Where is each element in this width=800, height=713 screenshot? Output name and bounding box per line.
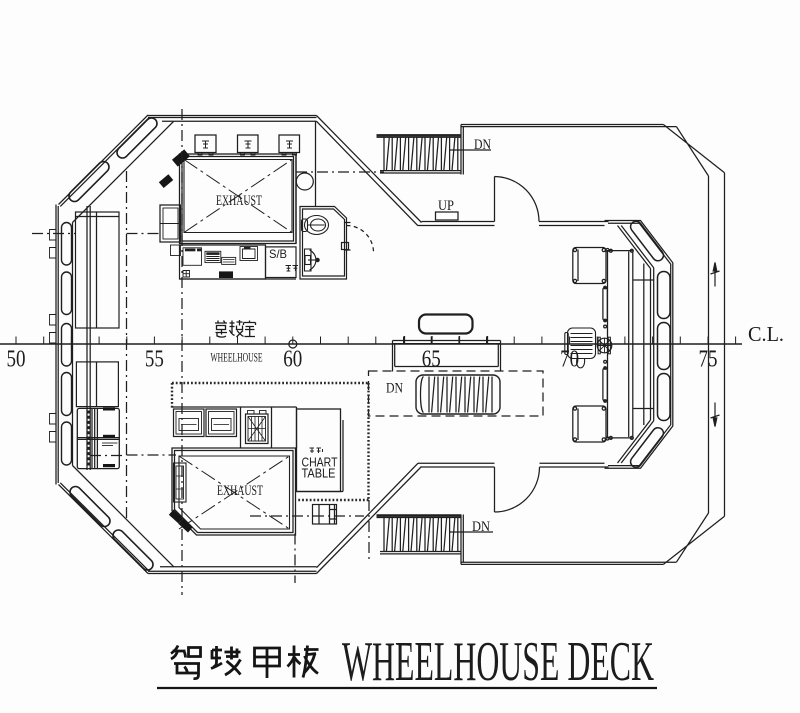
svg-text:C.L.: C.L.	[748, 322, 784, 346]
svg-text:DN: DN	[472, 519, 490, 535]
svg-text:S/B: S/B	[269, 247, 287, 261]
svg-text:50: 50	[7, 347, 26, 373]
svg-text:DN: DN	[386, 381, 403, 397]
svg-text:70: 70	[560, 347, 579, 373]
svg-text:EXHAUST: EXHAUST	[216, 193, 262, 209]
svg-text:EXHAUST: EXHAUST	[217, 483, 263, 499]
svg-text:75: 75	[699, 347, 718, 373]
svg-text:WHEELHOUSE: WHEELHOUSE	[211, 350, 263, 365]
svg-text:60: 60	[283, 347, 302, 373]
svg-text:DN: DN	[474, 137, 491, 153]
svg-text:55: 55	[145, 347, 164, 373]
svg-text:UP: UP	[438, 198, 454, 214]
svg-text:TABLE: TABLE	[302, 467, 336, 481]
svg-text:65: 65	[422, 347, 441, 373]
svg-text:WHEELHOUSE DECK: WHEELHOUSE DECK	[342, 631, 654, 693]
